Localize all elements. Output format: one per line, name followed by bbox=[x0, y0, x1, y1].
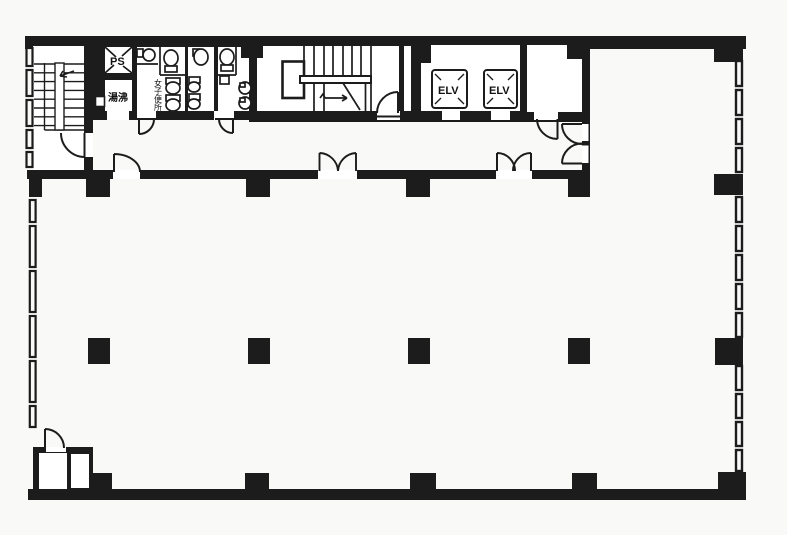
svg-text:湯沸: 湯沸 bbox=[108, 91, 128, 104]
svg-text:所: 所 bbox=[154, 102, 162, 112]
svg-text:ELV: ELV bbox=[489, 85, 510, 97]
svg-text:ELV: ELV bbox=[438, 85, 459, 97]
svg-text:PS: PS bbox=[110, 56, 125, 68]
